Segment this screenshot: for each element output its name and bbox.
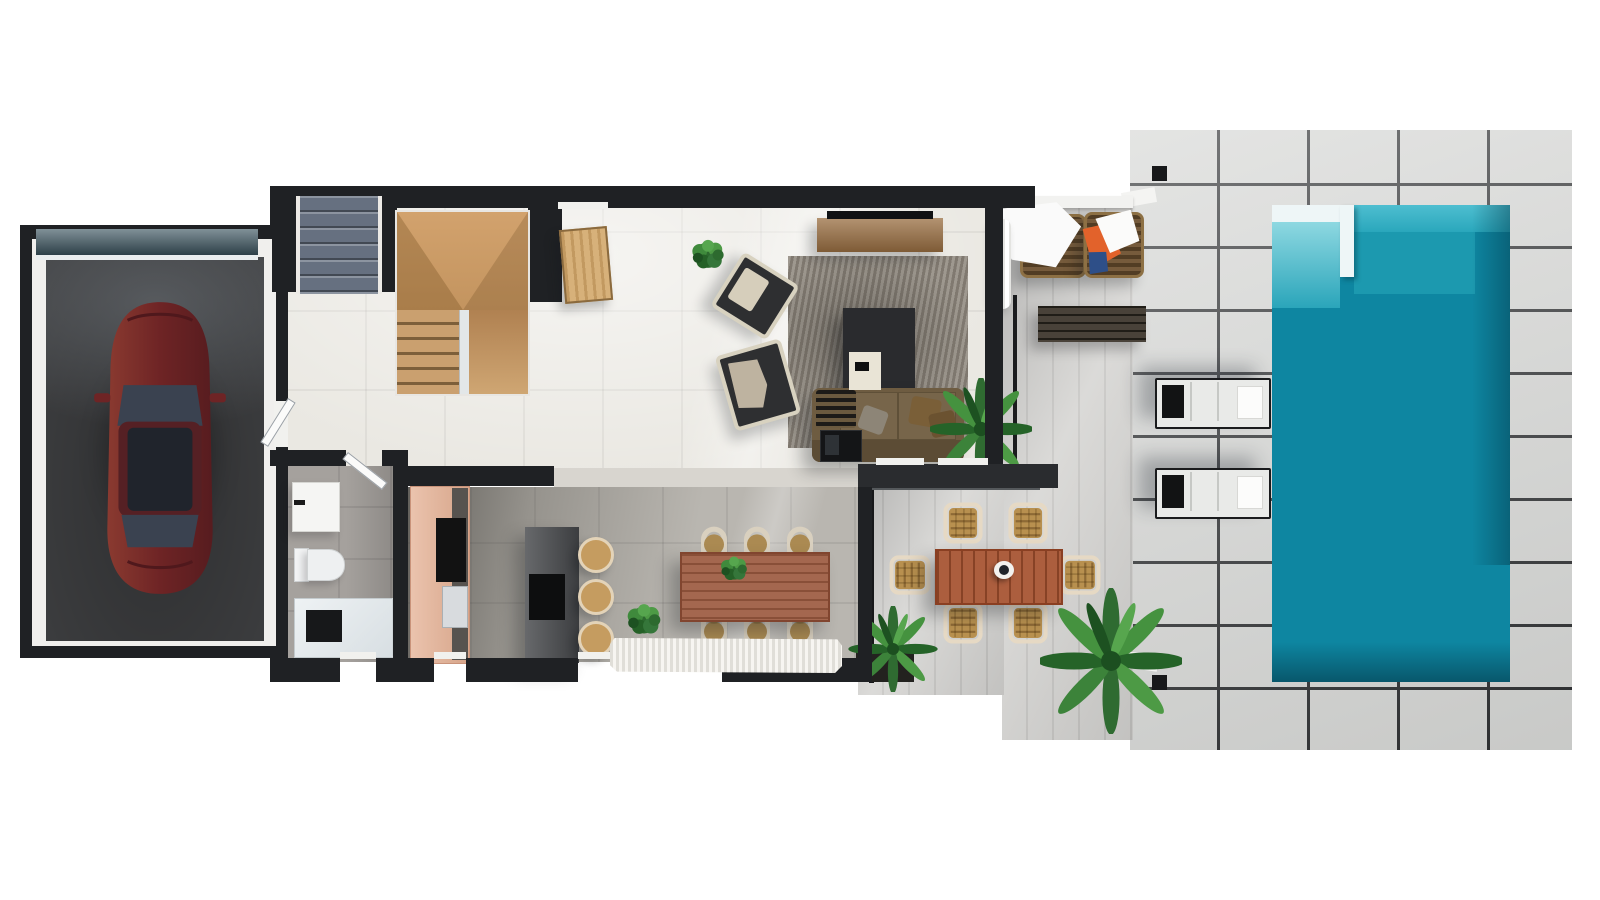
lounger-divider	[1217, 382, 1219, 421]
table-bowl	[994, 561, 1014, 579]
shower-mat	[306, 610, 342, 642]
wicker-chair-top-1	[941, 500, 985, 546]
sliding-door-band	[858, 464, 1058, 488]
garage-door	[36, 229, 258, 255]
wall-bathroom-top	[270, 450, 346, 466]
entry-steps-rail-left	[296, 196, 300, 294]
dining-table	[680, 552, 830, 622]
car-windshield	[117, 385, 202, 426]
pool-shallow-step-right	[1354, 232, 1475, 294]
table-centerpiece-plant	[714, 550, 754, 588]
fringed-rug	[610, 638, 842, 673]
bar-stool-2	[578, 579, 614, 615]
wall-bottom-1	[270, 658, 340, 682]
floor-plan-canvas	[0, 0, 1600, 900]
lounger-head-cushion	[1162, 385, 1184, 418]
pool-deep-shadow-right	[1472, 205, 1510, 565]
toilet-bowl	[307, 549, 345, 581]
window-threshold-1	[340, 652, 376, 659]
window-threshold-2	[434, 652, 466, 659]
pool-shallow-left	[1272, 222, 1340, 308]
kitchen-cooktop	[436, 518, 466, 582]
laptop	[820, 430, 862, 462]
wall-pier-entry	[528, 208, 562, 302]
basin-faucet	[294, 500, 305, 505]
lounge-chair-cushion	[727, 267, 770, 312]
car-sunroof	[128, 428, 193, 511]
lounger-head-cushion	[1162, 475, 1184, 508]
swimming-pool	[1272, 205, 1510, 682]
lounger-pillow	[1237, 476, 1263, 509]
wall-right-living	[985, 195, 1003, 468]
entry-steps	[300, 196, 378, 294]
front-door-threshold	[558, 202, 608, 209]
sliding-door-threshold-2	[938, 458, 988, 465]
car	[88, 296, 232, 600]
terrace-bench	[1038, 306, 1146, 342]
garage-door-sill	[36, 255, 258, 260]
stair-flight-right	[469, 310, 528, 394]
staircase	[395, 210, 530, 396]
coffee-table-tray	[849, 352, 881, 390]
front-door-leaf	[559, 226, 613, 304]
kitchen-sink	[442, 586, 468, 628]
car-mirror-right	[210, 393, 226, 402]
lounger-divider	[1217, 472, 1219, 511]
tv	[827, 211, 933, 219]
wall-bathroom-right	[393, 450, 408, 662]
tv-console	[817, 218, 943, 252]
wicker-chair-left	[887, 553, 933, 597]
sliding-door-threshold-1	[876, 458, 924, 465]
pool-deep-shadow-bottom	[1272, 642, 1510, 682]
pool-ledge-vertical	[1340, 205, 1354, 277]
sun-lounger-1	[1155, 378, 1271, 429]
palm-plant-deck	[1040, 588, 1182, 734]
island-cooktop	[529, 574, 565, 620]
wall-kitchen-top	[408, 466, 554, 486]
wall-right-lower	[858, 487, 872, 682]
lounger-divider	[1190, 382, 1192, 421]
striped-pillow-stack	[816, 390, 856, 428]
potted-plant-living	[684, 232, 732, 278]
lounger-divider	[1190, 472, 1192, 511]
bar-stool-1	[578, 537, 614, 573]
wicker-chair-top-2	[1006, 500, 1050, 546]
wall-bottom-3	[466, 658, 578, 682]
sun-lounger-2	[1155, 468, 1271, 519]
bowl-center	[999, 565, 1009, 575]
laptop-screen	[825, 435, 839, 455]
stair-flight-left	[397, 310, 459, 394]
tray-item	[855, 362, 869, 371]
floor-band	[554, 468, 858, 487]
lounger-pillow	[1237, 386, 1263, 419]
deck-post-top	[1152, 166, 1167, 181]
car-mirror-left	[94, 393, 110, 402]
wall-bottom-2	[376, 658, 434, 682]
wicker-chair-bottom-1	[941, 600, 985, 646]
car-rear-window	[121, 515, 198, 547]
sliding-door-track	[870, 488, 1040, 490]
lounge-chair-blanket	[726, 355, 773, 414]
entry-steps-rail-right	[378, 196, 382, 294]
washbasin-cabinet	[292, 482, 340, 532]
